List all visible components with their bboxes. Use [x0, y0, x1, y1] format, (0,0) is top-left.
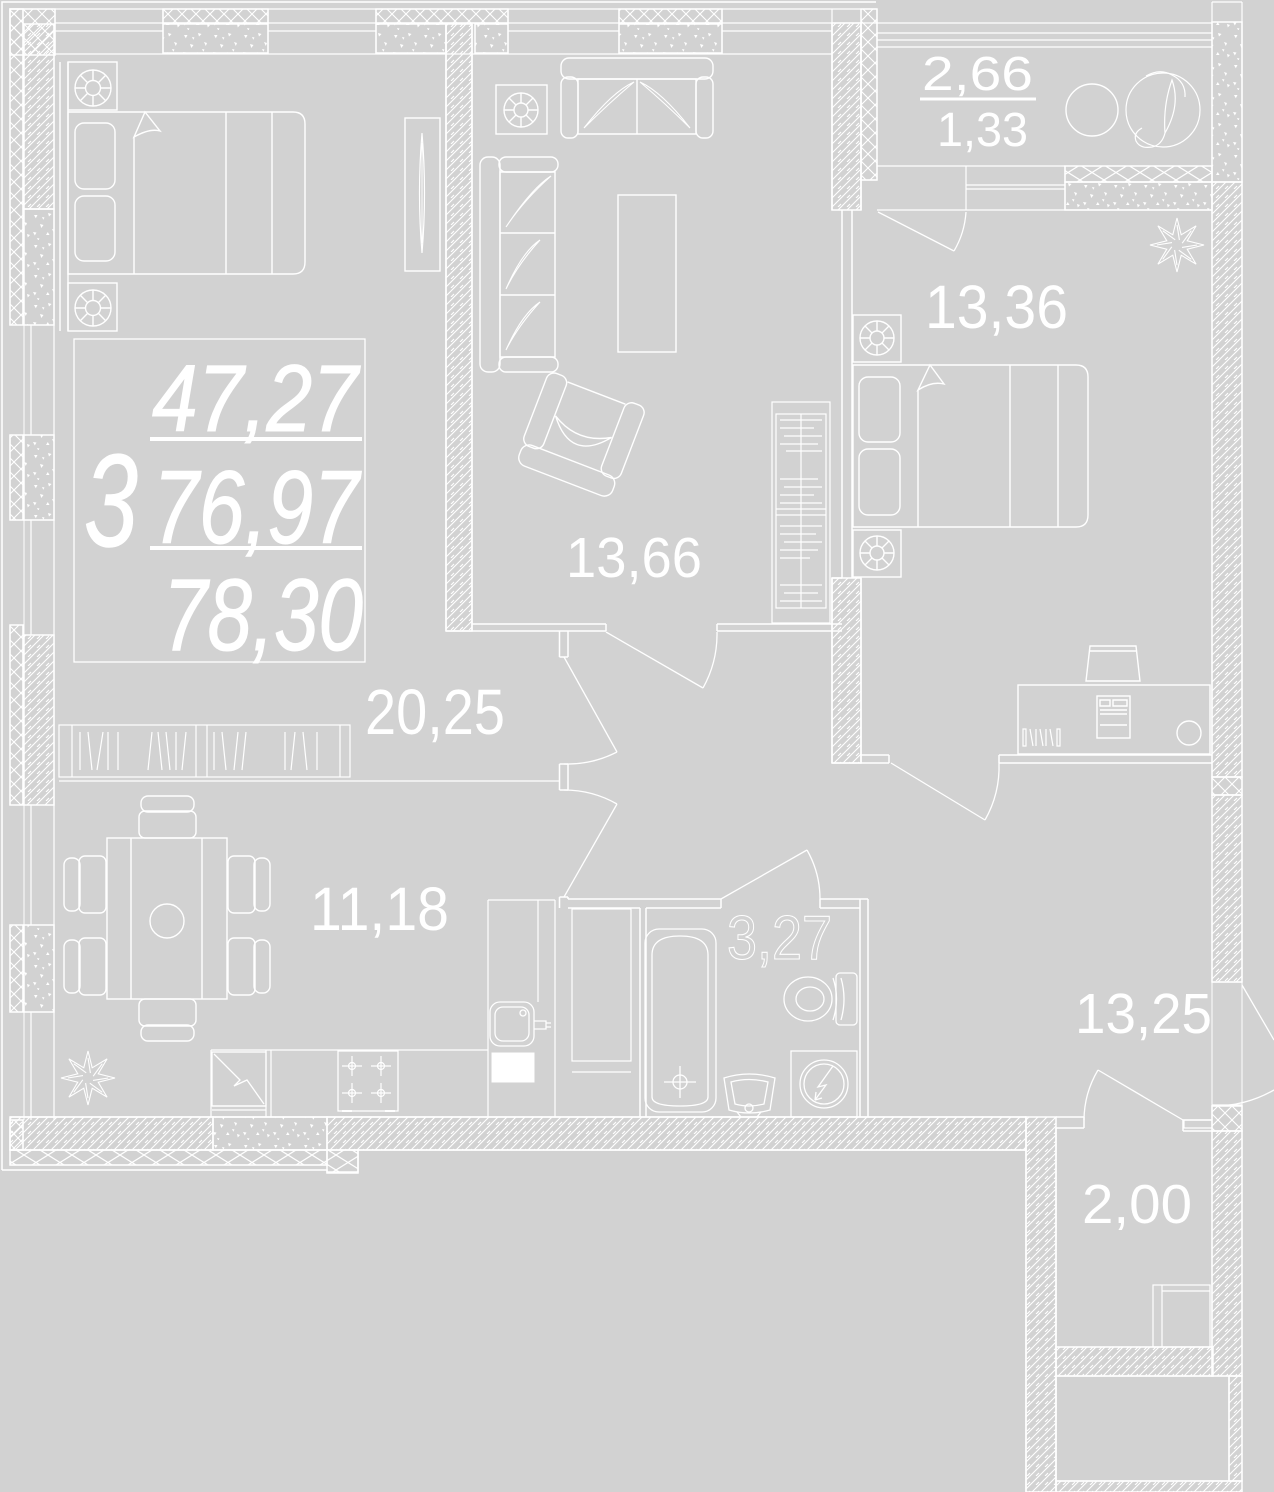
svg-text:3: 3 — [84, 427, 138, 574]
svg-text:47,27: 47,27 — [152, 346, 361, 452]
svg-text:3,27: 3,27 — [727, 904, 832, 973]
svg-text:2,00: 2,00 — [1082, 1173, 1192, 1235]
svg-text:1,33: 1,33 — [937, 104, 1028, 157]
svg-text:13,66: 13,66 — [566, 526, 702, 590]
svg-text:13,25: 13,25 — [1075, 982, 1212, 1046]
svg-text:20,25: 20,25 — [365, 676, 505, 748]
svg-text:13,36: 13,36 — [925, 273, 1068, 341]
svg-text:78,30: 78,30 — [163, 558, 363, 672]
svg-text:11,18: 11,18 — [310, 875, 449, 943]
svg-text:2,66: 2,66 — [922, 48, 1033, 101]
